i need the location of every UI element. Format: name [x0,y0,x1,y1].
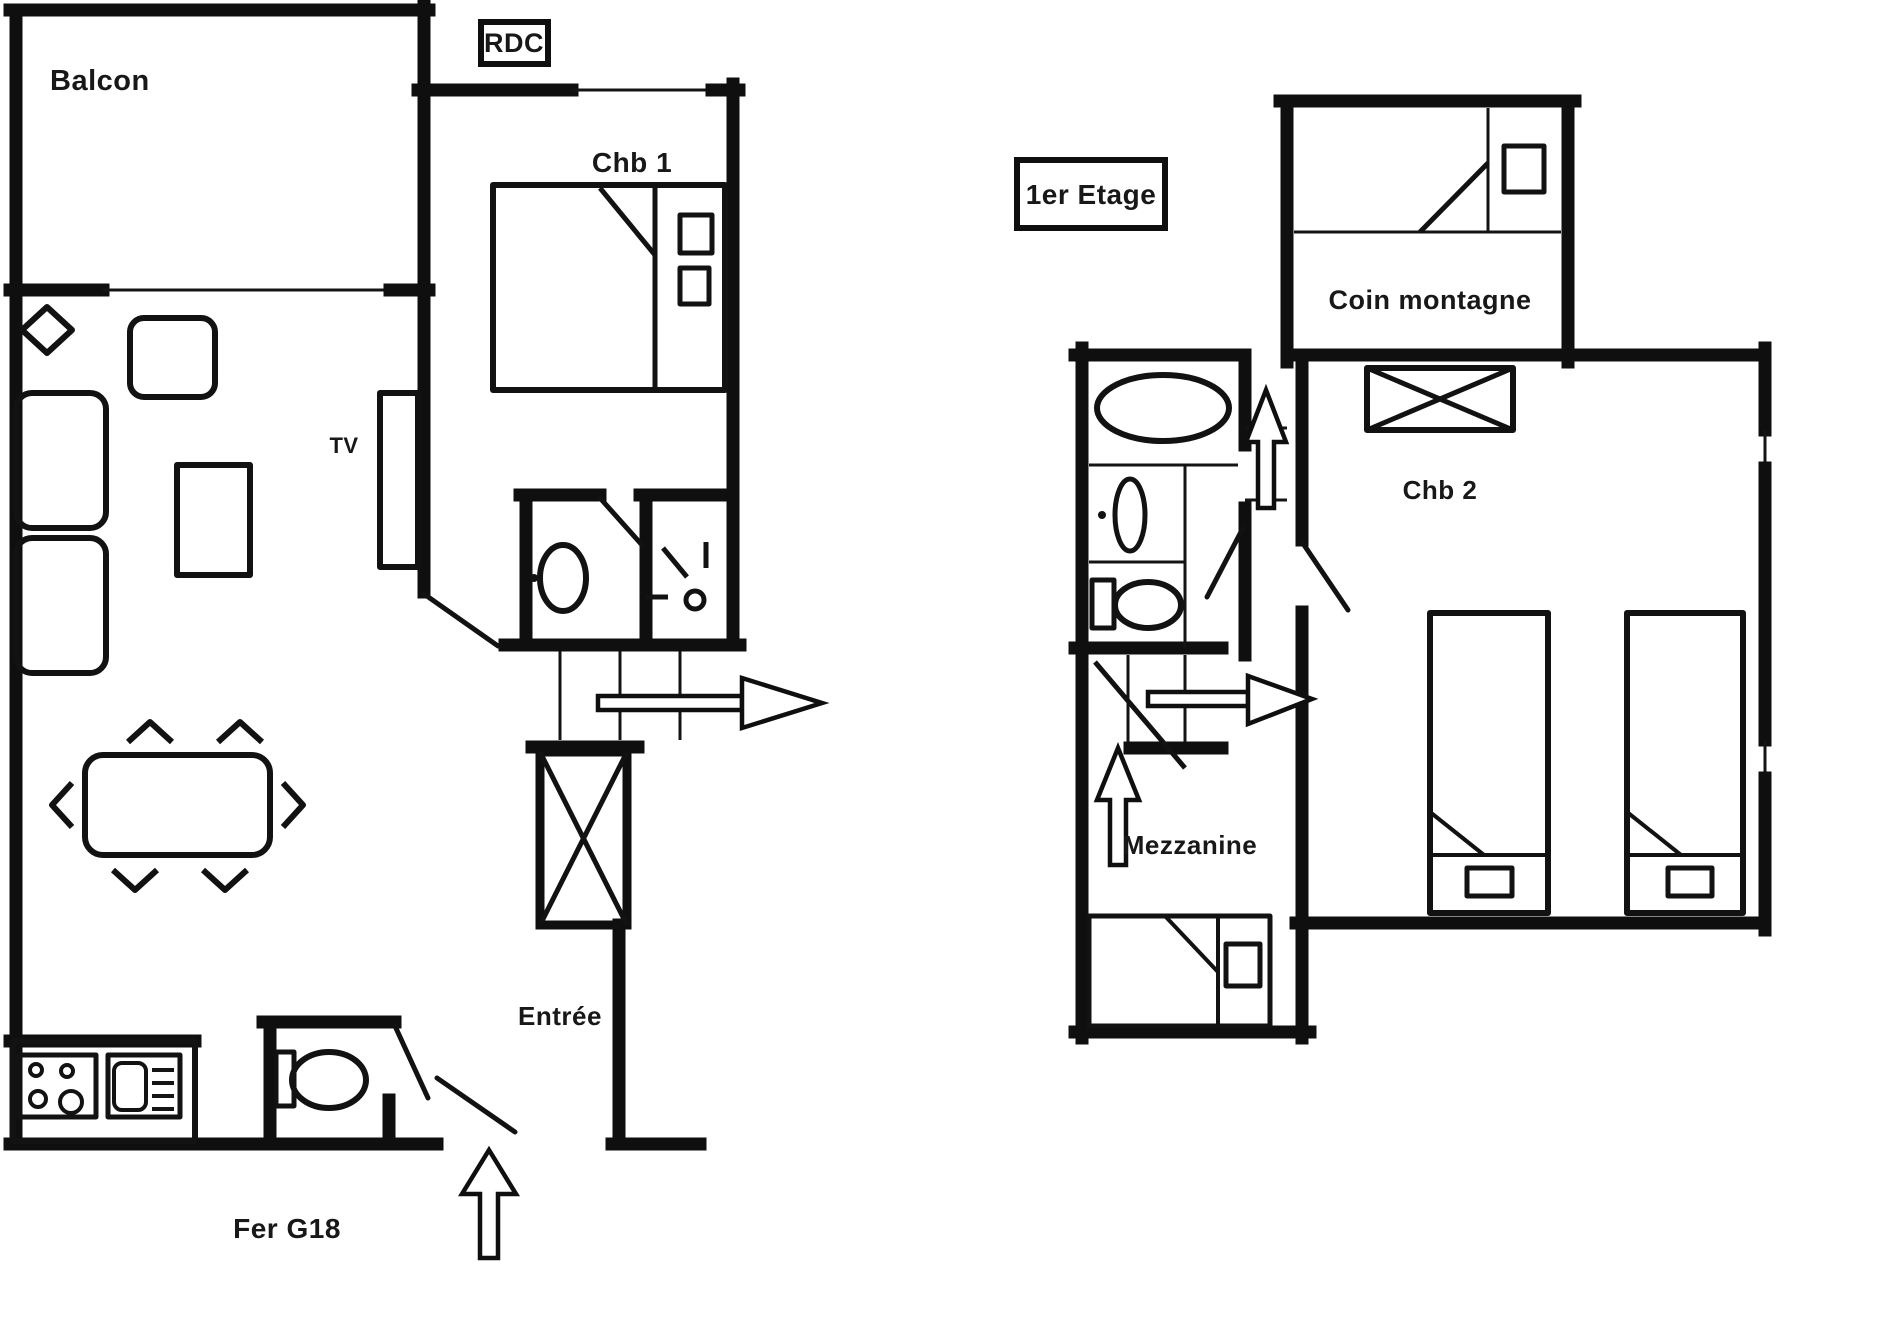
pillow [1467,868,1512,896]
floor-plan-page: Balcon RDC Chb 1 TV Entrée Fer G18 [0,0,1900,1326]
stairs-arrow-head-icon [742,678,822,728]
chair-icon [52,783,72,827]
burner-icon [30,1064,42,1076]
label-chb2: Chb 2 [1403,475,1478,505]
label-fer-g18: Fer G18 [233,1213,341,1244]
chair-icon [283,783,303,827]
door-swing [395,1026,428,1098]
sofa [16,393,106,528]
label-entree: Entrée [518,1001,602,1031]
mezzanine-bed [1089,916,1270,1026]
floor-plan-drawing: Balcon RDC Chb 1 TV Entrée Fer G18 [0,0,1900,1326]
shower-mark [663,548,687,577]
pillow [680,268,709,304]
burner-icon [30,1091,46,1107]
door-swing [600,498,642,545]
door-swing [1207,528,1243,597]
pillow [1668,868,1712,896]
washbasin-tap-dot [1098,511,1106,519]
stairs-arrow-shaft [1148,692,1248,706]
bed-fold-diagonal [1627,812,1681,855]
label-chb1: Chb 1 [592,147,672,178]
single-bed-a [1430,613,1548,913]
floor-rdc: Balcon RDC Chb 1 TV Entrée Fer G18 [10,0,822,1258]
armchair [130,318,215,397]
etage1-walls [1075,101,1765,1038]
floor-etage1: 1er Etage Coin montagne Chb 2 Mezzanine [1017,101,1765,1038]
pillow [1504,146,1544,192]
crossed-wardrobe [1367,368,1513,430]
bathtub [1097,375,1229,441]
etage1-tag: 1er Etage [1017,160,1165,228]
toilet-flush-dot [530,574,538,582]
label-tv: TV [329,433,358,458]
label-coin-montagne: Coin montagne [1329,285,1532,315]
entrance-wc [276,1052,366,1108]
burner-icon [60,1091,82,1113]
sofa [16,538,106,673]
door-swing [424,594,498,646]
stairs-arrow-shaft [598,696,742,710]
entry-up-arrow-icon [462,1150,516,1258]
bed-fold-diagonal [1420,163,1488,232]
label-etage1: 1er Etage [1026,179,1157,210]
dining-table [85,755,270,855]
toilet-bowl [292,1052,366,1108]
pillow [1226,944,1260,986]
shaft-cross-box [540,752,627,925]
stairs-up-arrow-icon [1246,390,1286,508]
chair-icon [128,722,172,742]
wc-room [530,545,586,611]
bed-fold-diagonal [1430,812,1484,855]
sink-basin [114,1063,146,1110]
dining-chairs [52,722,303,890]
chair-icon [113,870,157,890]
washbasin [1115,479,1145,551]
single-bed-b [1627,613,1743,913]
shower-drain-icon [686,591,704,609]
pillow [680,215,712,253]
coffee-table [177,465,250,575]
bed-fold-diagonal [1165,916,1218,972]
stairs-rdc [560,651,822,740]
toilet-cistern [1092,580,1114,628]
double-bed [493,185,725,390]
toilet-bowl [540,545,586,611]
label-balcon: Balcon [50,65,150,97]
decor-diamond-icon [22,307,72,353]
rdc-tag: RDC [481,22,548,64]
label-rdc: RDC [484,28,544,58]
door-swing [437,1078,515,1132]
stove [18,1055,96,1117]
door-swing [1302,542,1348,610]
coin-montagne-bed [1420,146,1544,232]
toilet-bowl [1115,582,1181,628]
tv-unit [380,393,418,567]
label-mezzanine: Mezzanine [1123,830,1258,860]
chair-icon [218,722,262,742]
burner-icon [61,1065,73,1077]
chair-icon [203,870,247,890]
shower-room [645,542,706,609]
bed-fold-diagonal [600,188,655,255]
kitchen [13,1041,195,1141]
